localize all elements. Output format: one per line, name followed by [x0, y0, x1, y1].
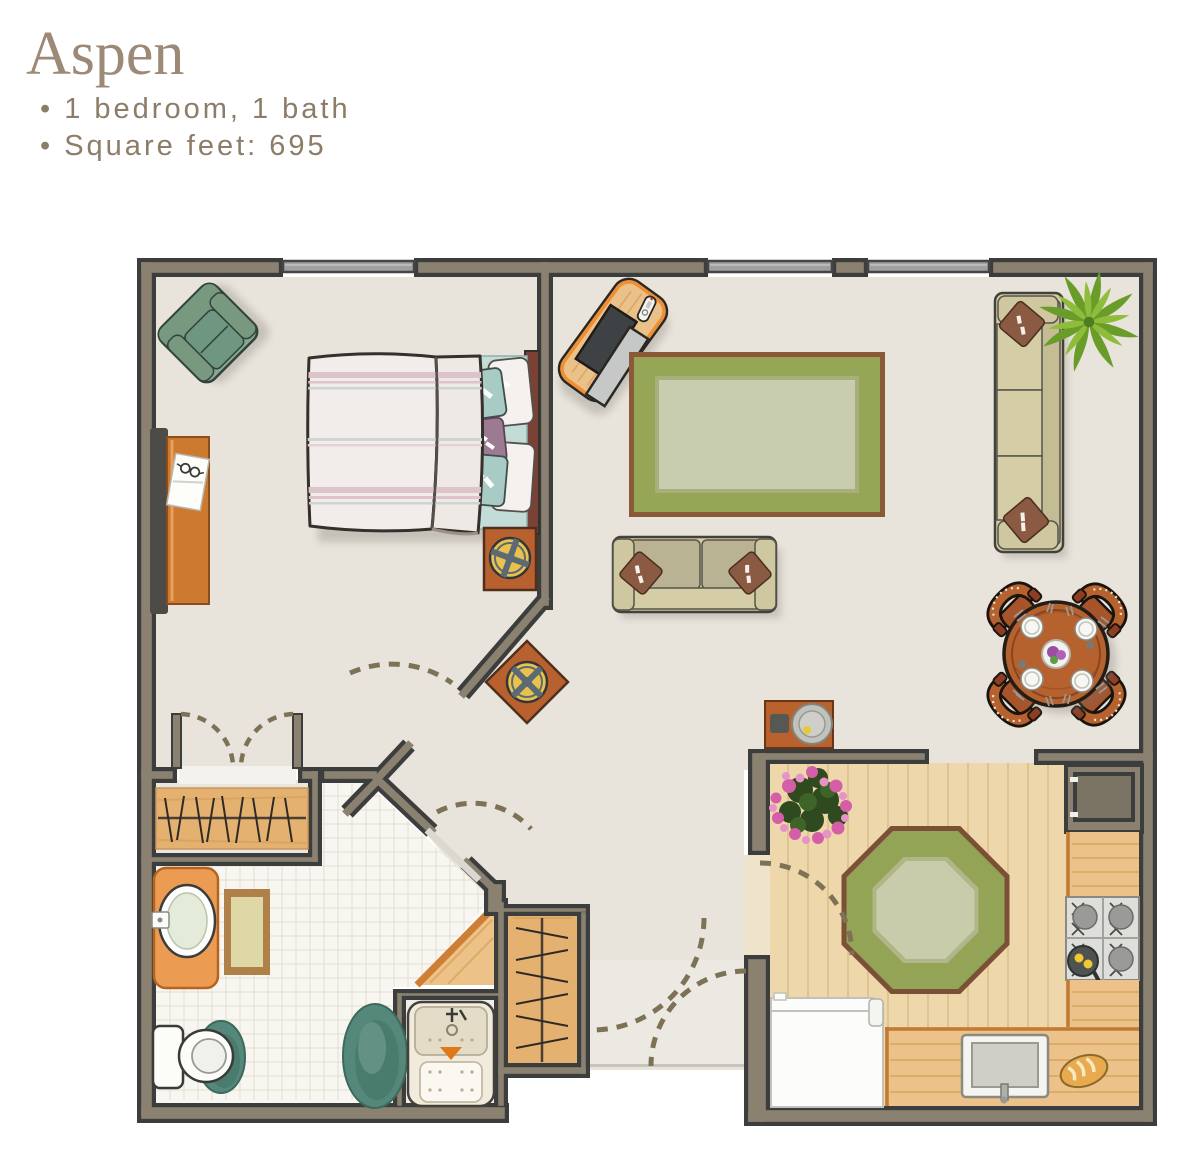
svg-text:• 1 bedroom, 1 bath: • 1 bedroom, 1 bath	[40, 93, 351, 125]
svg-text:Aspen: Aspen	[26, 20, 184, 88]
svg-text:• Square feet: 695: • Square feet: 695	[40, 130, 327, 162]
